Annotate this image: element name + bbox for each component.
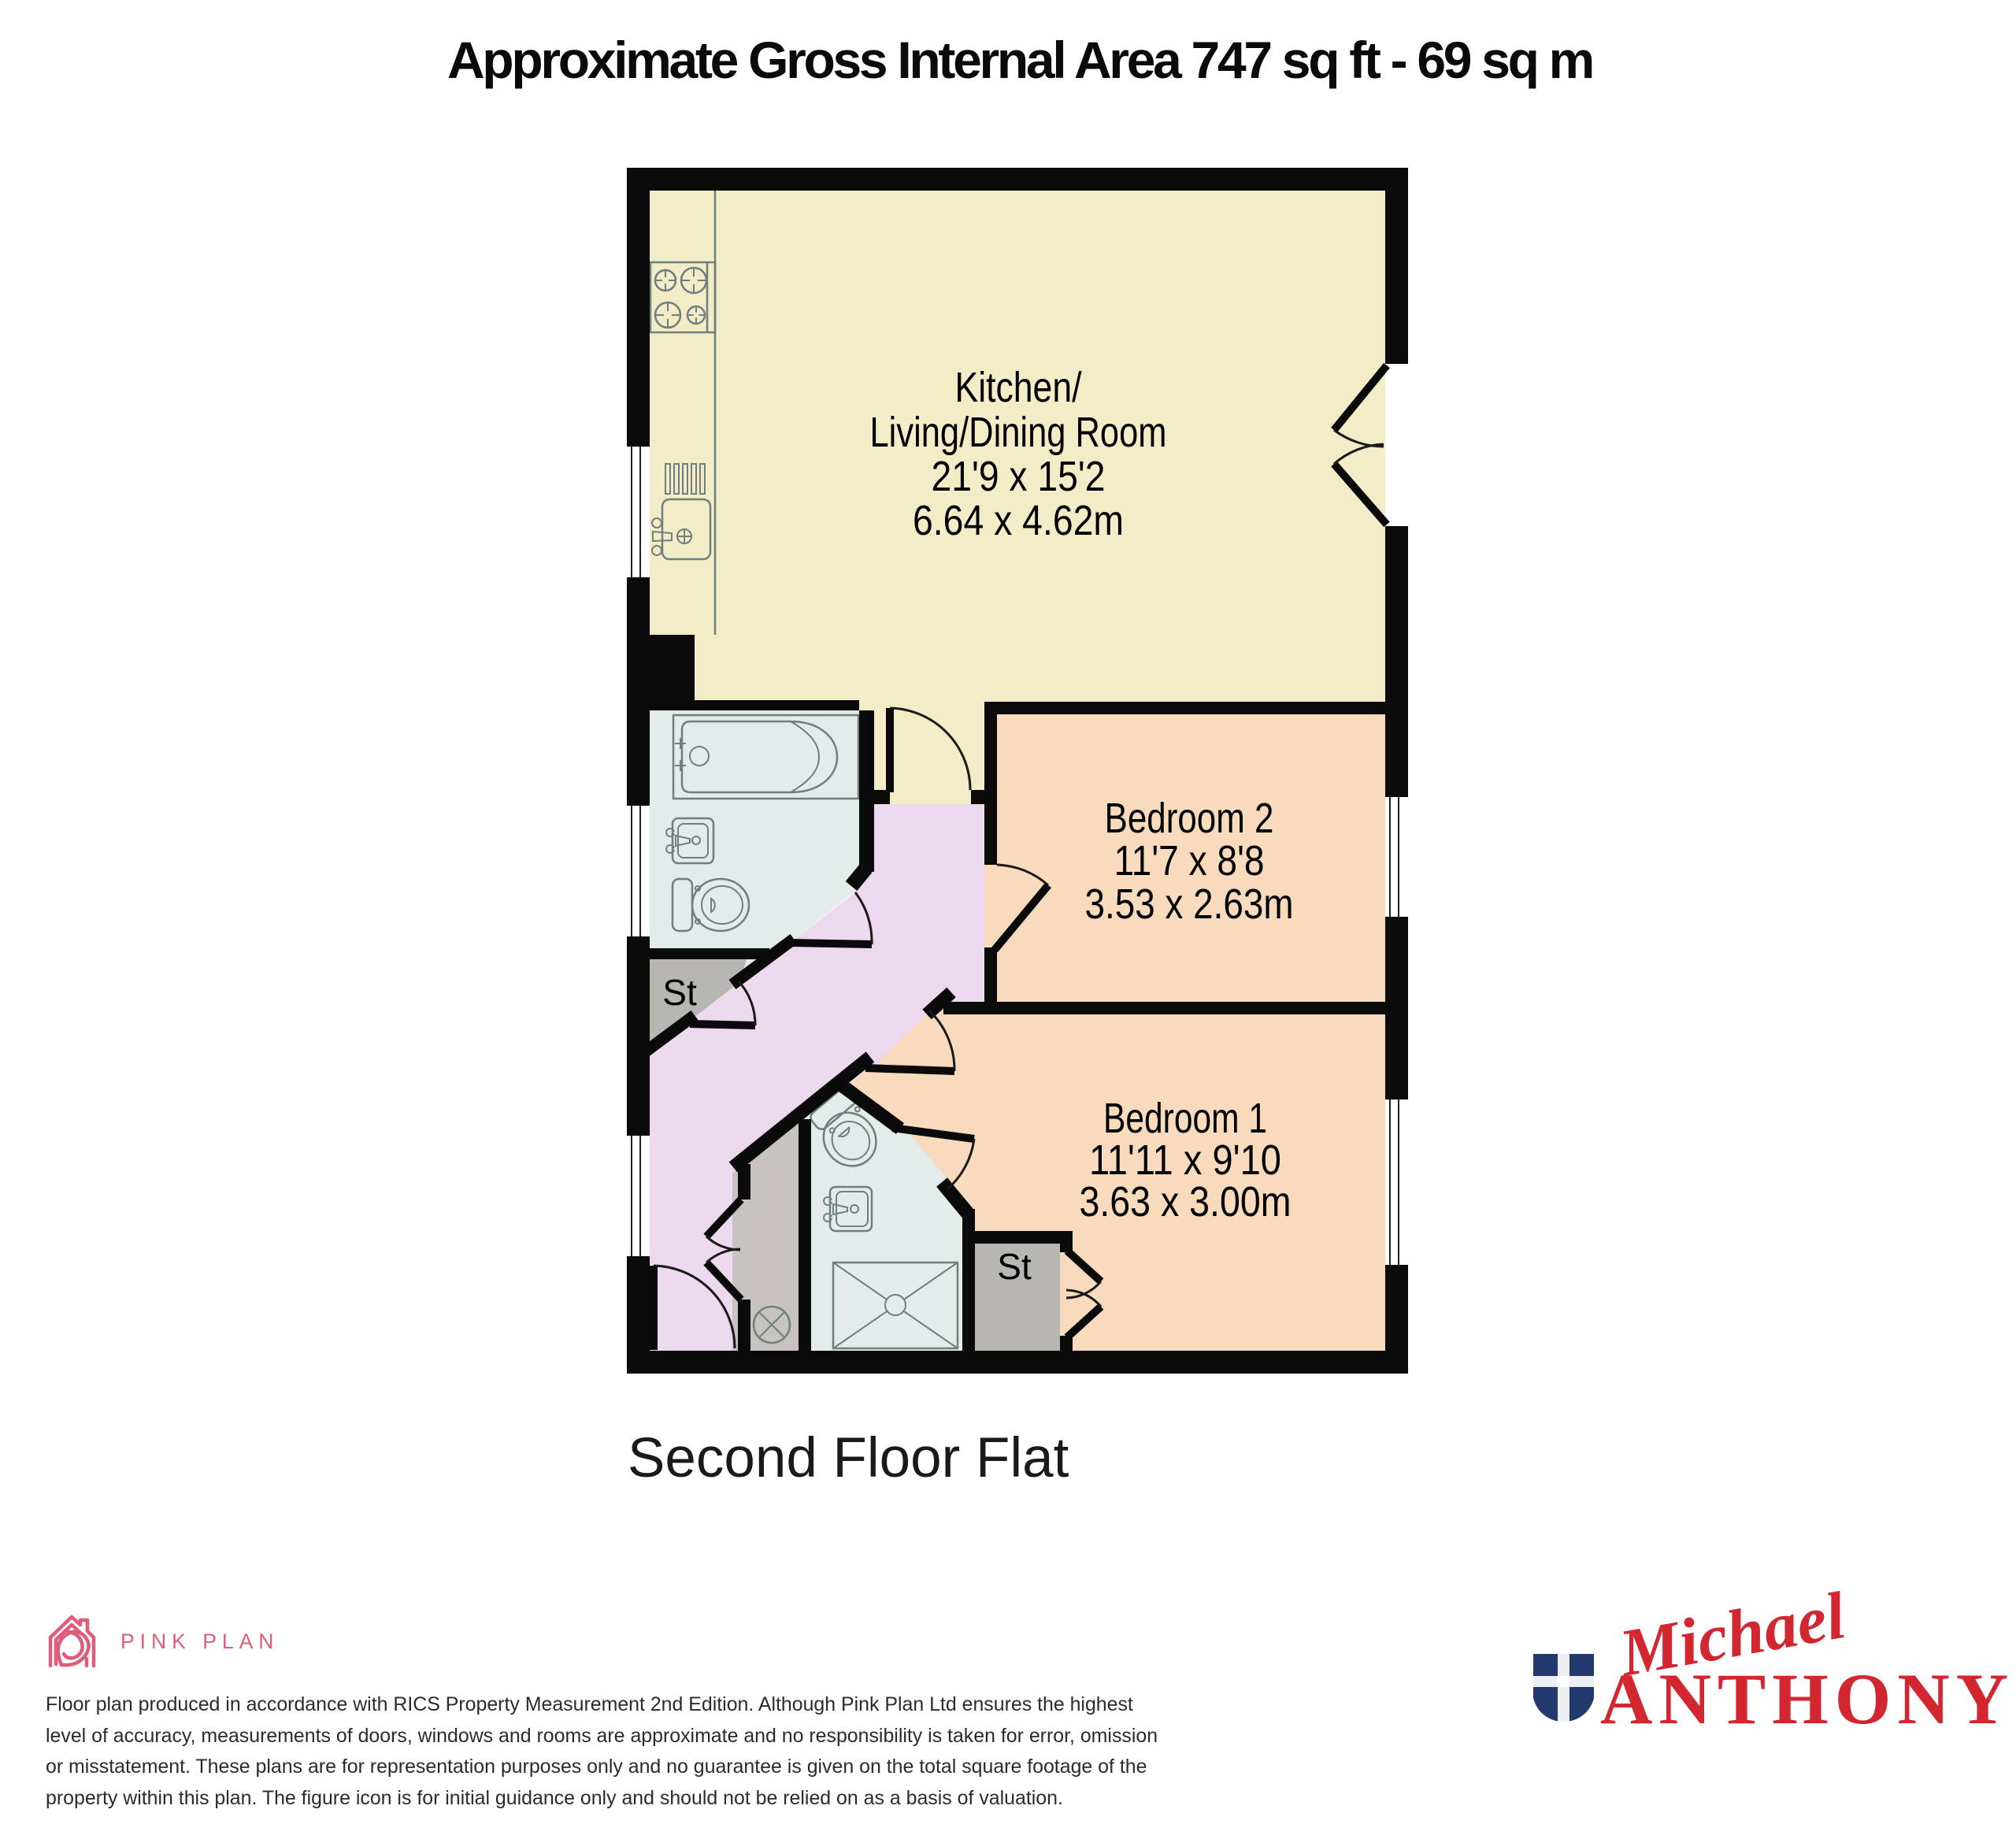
svg-text:21'9 x 15'2: 21'9 x 15'2 [932,453,1106,500]
svg-text:Approximate Gross Internal Are: Approximate Gross Internal Area 747 sq f… [447,31,1592,89]
svg-text:Bedroom 1: Bedroom 1 [1103,1095,1267,1142]
svg-text:3.53 x 2.63m: 3.53 x 2.63m [1085,881,1294,928]
svg-text:St: St [997,1246,1032,1287]
svg-text:Second Floor Flat: Second Floor Flat [628,1427,1069,1489]
svg-text:level of accuracy, measurement: level of accuracy, measurements of doors… [46,1725,1158,1747]
svg-text:11'11 x 9'10: 11'11 x 9'10 [1089,1136,1281,1184]
svg-text:PINK PLAN: PINK PLAN [120,1630,279,1653]
svg-text:Floor plan produced in accorda: Floor plan produced in accordance with R… [46,1693,1133,1715]
svg-text:ANTHONY: ANTHONY [1600,1659,2014,1739]
svg-text:6.64 x 4.62m: 6.64 x 4.62m [913,497,1124,544]
svg-text:3.63 x 3.00m: 3.63 x 3.00m [1080,1178,1291,1225]
svg-text:11'7 x 8'8: 11'7 x 8'8 [1114,837,1265,884]
svg-text:Bedroom 2: Bedroom 2 [1105,795,1274,842]
svg-text:property within this plan. The: property within this plan. The figure ic… [46,1787,1063,1809]
svg-text:St: St [662,972,697,1013]
svg-text:or misstatement. These plans a: or misstatement. These plans are for rep… [46,1756,1147,1778]
svg-text:Living/Dining Room: Living/Dining Room [870,409,1167,456]
svg-text:Kitchen/: Kitchen/ [955,364,1082,411]
